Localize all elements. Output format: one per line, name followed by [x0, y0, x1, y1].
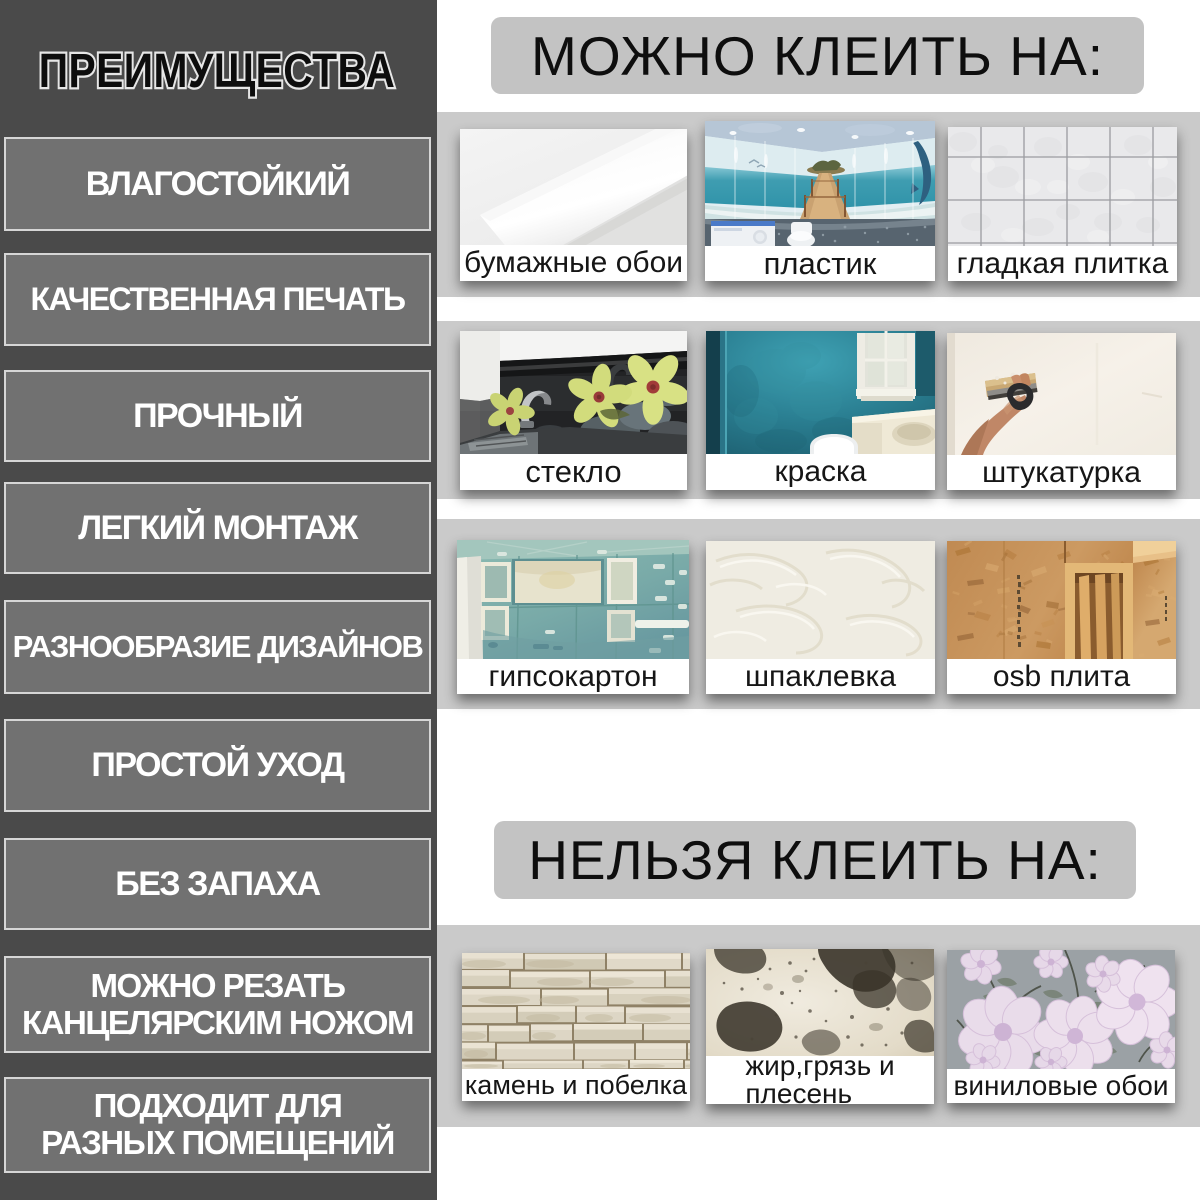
- svg-text:ПРЕИМУЩЕСТВА: ПРЕИМУЩЕСТВА: [39, 45, 395, 98]
